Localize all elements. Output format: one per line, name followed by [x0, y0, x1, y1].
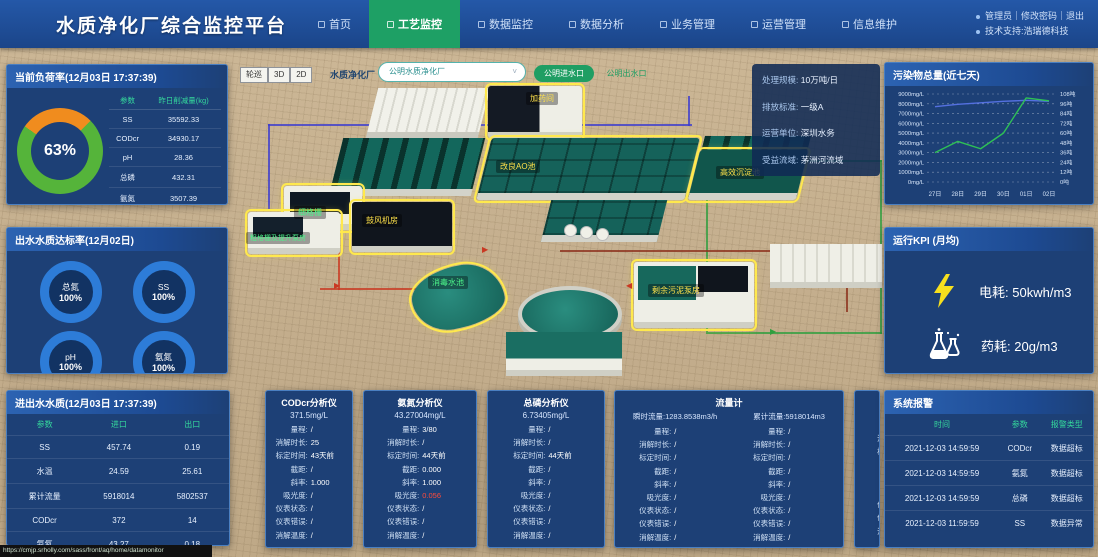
dashboard-root: 水质净化厂综合监控平台 首页工艺监控数据监控数据分析业务管理运营管理信息维护 管… [0, 0, 1098, 557]
field-row: 仪表状态:/ [488, 502, 604, 515]
svg-text:72吨: 72吨 [1060, 119, 1072, 127]
pipe-blue [688, 96, 690, 126]
field-row: 量程:/ [488, 423, 604, 436]
field-row: 标定时间:/ [855, 445, 880, 458]
chevron-down-icon: ˅ [512, 63, 517, 81]
nav-icon [660, 21, 667, 28]
field-row: 斜率:1.000 [266, 476, 352, 489]
nav-icon [318, 21, 325, 28]
inout-title: 进出水水质(12月03日 17:37:39) [7, 391, 229, 414]
field-row: 仪表错误:/ [729, 517, 843, 530]
nav-item-2[interactable]: 数据监控 [460, 0, 551, 48]
plant-select-label: 水质净化厂 [330, 68, 375, 81]
field-row: 量程:/ [729, 425, 843, 438]
inout-quality-panel: 进出水水质(12月03日 17:37:39) 参数进口出口 SS457.740.… [6, 390, 230, 546]
field-row: 斜率:/ [488, 476, 604, 489]
flowmeter-panel: 流量计 瞬时流量:1283.8538m3/h 累计流量:5918014m3 量程… [614, 390, 844, 548]
col-header: 时间 [885, 414, 999, 436]
field-row: 标定时间:44天前 [364, 449, 476, 462]
svg-text:24吨: 24吨 [1060, 158, 1072, 166]
pipe-green [706, 332, 882, 334]
field-row: 量程:/ [266, 423, 352, 436]
field-row: 消解温度:/ [266, 529, 352, 542]
svg-text:0mg/L: 0mg/L [908, 180, 925, 186]
load-percent: 63% [44, 142, 76, 160]
3d-button[interactable]: 3D [268, 67, 290, 83]
field-row: 斜率:/ [615, 478, 729, 491]
field-row: 吸光度:/ [266, 489, 352, 502]
table-row: CODcr34930.17 [109, 129, 221, 148]
field-row: 截距:0.000 [364, 463, 476, 476]
compliance-gauge: 总氮100% [40, 261, 102, 323]
field-row: 仪表状态:/ [615, 504, 729, 517]
field-row: 吸光度:0.056 [364, 489, 476, 502]
kpi-panel: 运行KPI (月均) 电耗: 50kwh/m3 药耗: 20g [884, 227, 1094, 374]
alarm-row: 2021-12-03 14:59:59氨氮数据超标 [885, 461, 1093, 486]
field-row: 仪表错误:/ [855, 511, 880, 524]
load-donut-chart: 63% [17, 108, 103, 194]
pollutant-chart-title: 污染物总量(近七天) [885, 63, 1093, 86]
svg-text:01日: 01日 [1020, 191, 1033, 198]
table-row: SS457.740.19 [7, 436, 229, 459]
top-header: 水质净化厂综合监控平台 首页工艺监控数据监控数据分析业务管理运营管理信息维护 管… [0, 0, 1098, 48]
pollutant-line-chart: 9000mg/L108吨8000mg/L96吨7000mg/L84吨6000mg… [885, 86, 1093, 205]
field-row: 消解时长:/ [488, 436, 604, 449]
field-row: 标定时间:44天前 [488, 449, 604, 462]
info-row: 受益流域: 茅洲河流域 [762, 154, 870, 166]
svg-text:108吨: 108吨 [1060, 90, 1076, 98]
field-row: 消解温度:/ [364, 529, 476, 542]
analyzer-title: 氨氮分析仪 [364, 391, 476, 409]
svg-text:12吨: 12吨 [1060, 168, 1072, 176]
field-row: 量程:/ [615, 425, 729, 438]
field-row: 截距:/ [729, 465, 843, 478]
pool-disinfect[interactable] [407, 258, 508, 335]
nav-icon [478, 21, 485, 28]
analyzer-title: 总磷分析仪 [488, 391, 604, 409]
view-mode-group: 轮巡3D2D [240, 64, 312, 83]
svg-text:8000mg/L: 8000mg/L [898, 102, 925, 108]
field-row: 仪表状态:/ [729, 504, 843, 517]
main-nav: 首页工艺监控数据监控数据分析业务管理运营管理信息维护 [300, 0, 915, 48]
field-row: 量程:/ [855, 419, 880, 432]
svg-text:02日: 02日 [1043, 191, 1056, 198]
col-param: 参数 [109, 92, 146, 110]
analyzer-nh3-panel: 氨氮分析仪43.27004mg/L量程:3/80消解时长:/标定时间:44天前截… [363, 390, 477, 548]
alarm-row: 2021-12-03 14:59:59总磷数据超标 [885, 486, 1093, 511]
flask-icon [927, 327, 963, 363]
field-row: 消解时长:/ [729, 438, 843, 451]
field-row: 截距:/ [855, 459, 880, 472]
field-row: 截距:/ [615, 465, 729, 478]
svg-text:1000mg/L: 1000mg/L [898, 170, 925, 176]
field-row: 仪表状态:/ [364, 502, 476, 515]
field-row: 吸光度:/ [729, 491, 843, 504]
alarm-panel: 系统报警 时间参数报警类型 2021-12-03 14:59:59CODcr数据… [884, 390, 1094, 548]
patrol-button[interactable]: 轮巡 [240, 67, 268, 83]
tank-icon [580, 226, 593, 239]
nav-item-4[interactable]: 业务管理 [642, 0, 733, 48]
pipe-blue [268, 124, 270, 210]
svg-text:7000mg/L: 7000mg/L [898, 112, 925, 118]
svg-text:36吨: 36吨 [1060, 149, 1072, 157]
flow-arrow-icon: ▶ [482, 246, 488, 254]
svg-text:3000mg/L: 3000mg/L [898, 151, 925, 157]
nav-icon [387, 21, 394, 28]
svg-text:29日: 29日 [974, 191, 987, 198]
flow-arrow-icon: ▶ [770, 328, 776, 336]
alarm-row: 2021-12-03 14:59:59CODcr数据超标 [885, 436, 1093, 461]
table-row: 总磷432.31 [109, 167, 221, 188]
building-dewatering [506, 332, 622, 376]
field-row: 消解时长:/ [615, 438, 729, 451]
total-flow: 累计流量:5918014m3 [753, 411, 825, 422]
load-table: 参数 昨日削减量(kg) SS35592.33CODcr34930.17pH28… [109, 92, 221, 205]
field-row: 截距:/ [266, 463, 352, 476]
tank-icon [596, 228, 609, 241]
flow-arrow-icon: ▶ [334, 282, 340, 290]
table-row: SS35592.33 [109, 110, 221, 129]
svg-text:5000mg/L: 5000mg/L [898, 131, 925, 137]
table-row: pH28.36 [109, 148, 221, 167]
compliance-gauge: pH100% [40, 331, 102, 374]
field-row: 吸光度:/ [615, 491, 729, 504]
info-row: 运营单位: 深圳水务 [762, 127, 870, 139]
nav-item-0[interactable]: 首页 [300, 0, 369, 48]
info-row: 排放标准: 一级A [762, 101, 870, 113]
building-blower[interactable] [352, 202, 452, 252]
nav-item-5[interactable]: 运营管理 [733, 0, 824, 48]
page-title: 水质净化厂综合监控平台 [0, 11, 300, 38]
compliance-gauge: 氨氮100% [133, 331, 195, 374]
field-row: 仪表错误:/ [266, 515, 352, 528]
field-row: 仪表状态:/ [855, 498, 880, 511]
label-dosing[interactable]: 加药间 [526, 92, 558, 105]
compliance-title: 出水水质达标率(12月02日) [7, 228, 227, 251]
building-white-roof [366, 88, 490, 138]
kpi-chemical: 药耗: 20g/m3 [981, 336, 1058, 355]
inout-table: 参数进口出口 SS457.740.19水温24.5925.61累计流量59180… [7, 414, 229, 546]
field-row: 标定时间:/ [729, 451, 843, 464]
field-row: 标定时间:43天前 [266, 449, 352, 462]
plant-select[interactable]: 公明水质净化厂˅ [378, 62, 526, 82]
nav-icon [751, 21, 758, 28]
field-row: 消解时长:/ [364, 436, 476, 449]
svg-text:48吨: 48吨 [1060, 139, 1072, 147]
bullet-icon [976, 15, 980, 19]
field-row: 吸光度:/ [488, 489, 604, 502]
building-right-row [770, 244, 882, 288]
field-row: 截距:/ [488, 463, 604, 476]
tank-icon [564, 224, 577, 237]
nav-icon [569, 21, 576, 28]
kpi-power: 电耗: 50kwh/m3 [979, 282, 1072, 301]
field-row: 标定时间:/ [615, 451, 729, 464]
field-row: 消解温度:/ [488, 529, 604, 542]
table-row: 氨氮43.270.18 [7, 532, 229, 547]
analyzer-value: 371.5mg/L [266, 409, 352, 423]
svg-text:27日: 27日 [929, 191, 942, 198]
svg-text:84吨: 84吨 [1060, 110, 1072, 118]
label-fine-screen[interactable]: 细格栅 [294, 206, 326, 219]
field-row: 仪表状态:/ [266, 502, 352, 515]
pollutant-chart-panel: 污染物总量(近七天) 9000mg/L108吨8000mg/L96吨7000mg… [884, 62, 1094, 205]
flow-arrow-icon: ◀ [626, 282, 632, 290]
svg-text:2000mg/L: 2000mg/L [898, 160, 925, 166]
field-row: 斜率:/ [855, 472, 880, 485]
svg-text:0吨: 0吨 [1060, 178, 1069, 186]
plant-info-box: 处理规模: 10万吨/日排放标准: 一级A运营单位: 深圳水务受益流域: 茅洲河… [752, 64, 880, 176]
svg-text:96吨: 96吨 [1060, 100, 1072, 108]
2d-button[interactable]: 2D [290, 67, 312, 83]
svg-text:6000mg/L: 6000mg/L [898, 121, 925, 127]
field-row: 吸光度:/ [855, 485, 880, 498]
col-header: 进口 [82, 414, 155, 436]
user-links[interactable]: 管理员｜修改密码｜退出 [976, 9, 1084, 24]
label-disinfect[interactable]: 消毒水池 [428, 276, 468, 289]
analyzer-tp-panel: 总磷分析仪6.73405mg/L量程:/消解时长:/标定时间:44天前截距:/斜… [487, 390, 605, 548]
field-row: 消解温度:/ [855, 525, 880, 538]
svg-text:60吨: 60吨 [1060, 129, 1072, 137]
svg-text:30日: 30日 [997, 191, 1010, 198]
field-row: 消解时长:/ [855, 432, 880, 445]
field-row: 量程:3/80 [364, 423, 476, 436]
col-header: 报警类型 [1041, 414, 1093, 436]
svg-text:28日: 28日 [951, 191, 964, 198]
table-row: CODcr37214 [7, 509, 229, 532]
alarm-row: 2021-12-03 11:59:59SS数据异常 [885, 511, 1093, 536]
kpi-title: 运行KPI (月均) [885, 228, 1093, 251]
label-coarse-screen[interactable]: 粗格栅及提升泵房 [246, 232, 310, 244]
alarm-title: 系统报警 [885, 391, 1093, 414]
analyzer-codcr-panel: CODcr分析仪371.5mg/L量程:/消解时长:25标定时间:43天前截距:… [265, 390, 353, 548]
info-row: 处理规模: 10万吨/日 [762, 74, 870, 86]
label-ao[interactable]: 改良AO池 [496, 160, 540, 173]
analyzer-title: CODcr分析仪 [266, 391, 352, 409]
nav-item-6[interactable]: 信息维护 [824, 0, 915, 48]
field-row: 消解温度:/ [729, 531, 843, 544]
nav-item-3[interactable]: 数据分析 [551, 0, 642, 48]
field-row: 斜率:1.000 [364, 476, 476, 489]
inlet-button[interactable]: 公明进水口 [534, 65, 594, 82]
field-row: 斜率:/ [729, 478, 843, 491]
analyzer-value: 6.73405mg/L [488, 409, 604, 423]
load-rate-panel: 当前负荷率(12月03日 17:37:39) 63% 参数 昨日削减量(kg) … [6, 64, 228, 205]
col-header: 出口 [156, 414, 229, 436]
alarm-table: 时间参数报警类型 2021-12-03 14:59:59CODcr数据超标202… [885, 414, 1093, 535]
clipped-analyzer-panel: 量程:/消解时长:/标定时间:/截距:/斜率:/吸光度:/仪表状态:/仪表错误:… [854, 390, 880, 548]
status-url: https://cmjp.srholly.com/sass/front/aq/h… [0, 545, 212, 557]
bullet-icon [976, 30, 980, 34]
nav-item-1[interactable]: 工艺监控 [369, 0, 460, 48]
col-header: 参数 [999, 414, 1040, 436]
label-blower[interactable]: 鼓风机房 [362, 214, 402, 227]
field-row: 仪表错误:/ [364, 515, 476, 528]
support-text: 技术支持:浩瑞德科技 [976, 24, 1084, 39]
field-row: 仪表错误:/ [488, 515, 604, 528]
compliance-panel: 出水水质达标率(12月02日) 总氮100%SS100%pH100%氨氮100% [6, 227, 228, 374]
table-row: 水温24.5925.61 [7, 459, 229, 484]
header-user-area: 管理员｜修改密码｜退出 技术支持:浩瑞德科技 [976, 9, 1098, 39]
field-row: 消解时长:25 [266, 436, 352, 449]
inlet-button-wrap: 公明进水口 公明出水口 [534, 63, 646, 82]
table-row: 累计流量59180145802537 [7, 484, 229, 509]
analyzer-value: 43.27004mg/L [364, 409, 476, 423]
compliance-gauge: SS100% [133, 261, 195, 323]
col-header: 参数 [7, 414, 82, 436]
flowmeter-title: 流量计 [615, 391, 843, 409]
label-sludge[interactable]: 剩余污泥泵房 [648, 284, 704, 297]
field-row: 消解温度:/ [615, 531, 729, 544]
table-row: 氨氮3507.39 [109, 188, 221, 206]
lightning-icon [927, 273, 961, 309]
svg-text:4000mg/L: 4000mg/L [898, 141, 925, 147]
instant-flow: 瞬时流量:1283.8538m3/h [633, 411, 717, 422]
field-row: 仪表错误:/ [615, 517, 729, 530]
outlet-button[interactable]: 公明出水口 [606, 69, 646, 78]
nav-icon [842, 21, 849, 28]
col-value: 昨日削减量(kg) [146, 92, 221, 110]
svg-text:9000mg/L: 9000mg/L [898, 92, 925, 98]
load-rate-title: 当前负荷率(12月03日 17:37:39) [7, 65, 227, 88]
